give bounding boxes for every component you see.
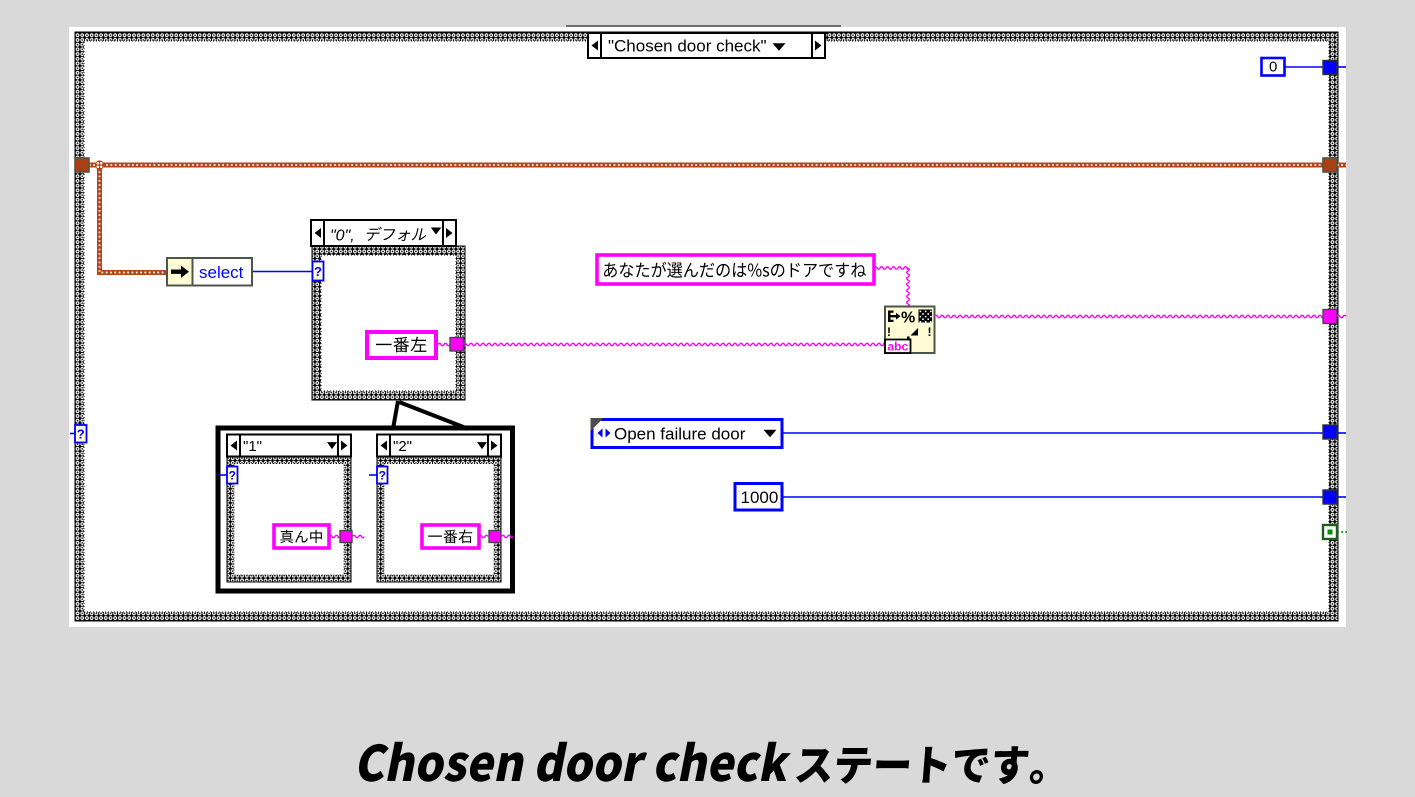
svg-text:?: ? <box>314 264 322 279</box>
svg-text:"Chosen door check": "Chosen door check" <box>608 37 767 56</box>
svg-text:?: ? <box>379 469 386 483</box>
svg-text:0: 0 <box>1269 59 1277 76</box>
svg-text:"0",: "0", <box>330 228 355 245</box>
svg-text:?: ? <box>229 469 236 483</box>
svg-text:!: ! <box>928 325 932 339</box>
svg-text:abc: abc <box>888 340 909 354</box>
svg-text:select: select <box>199 263 244 282</box>
svg-text:"1": "1" <box>243 438 262 455</box>
svg-text:?: ? <box>77 427 85 442</box>
svg-text:"2": "2" <box>393 438 412 455</box>
svg-text:!: ! <box>887 325 891 339</box>
svg-text:Open failure door: Open failure door <box>614 425 746 444</box>
svg-text:1000: 1000 <box>741 488 779 507</box>
svg-text:%: % <box>901 310 915 327</box>
